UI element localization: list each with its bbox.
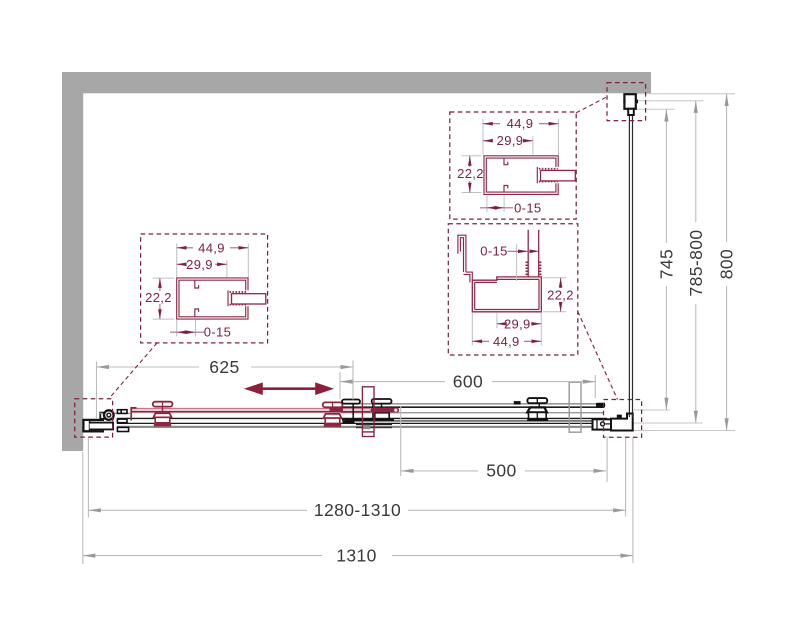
- svg-text:1280-1310: 1280-1310: [314, 500, 401, 520]
- svg-text:0-15: 0-15: [514, 200, 541, 215]
- svg-text:0-15: 0-15: [204, 325, 231, 340]
- svg-text:44,9: 44,9: [507, 116, 534, 131]
- svg-text:800: 800: [717, 249, 737, 279]
- svg-text:0-15: 0-15: [480, 243, 507, 258]
- svg-text:625: 625: [209, 357, 239, 377]
- svg-text:745: 745: [656, 249, 676, 279]
- svg-text:22,2: 22,2: [457, 166, 484, 181]
- svg-text:1310: 1310: [336, 545, 377, 565]
- svg-text:500: 500: [486, 461, 516, 481]
- svg-text:29,9: 29,9: [504, 316, 531, 331]
- svg-text:44,9: 44,9: [493, 334, 520, 349]
- svg-text:22,2: 22,2: [547, 287, 574, 302]
- svg-text:22,2: 22,2: [145, 290, 172, 305]
- svg-text:29,9: 29,9: [186, 257, 213, 272]
- svg-text:785-800: 785-800: [686, 229, 706, 296]
- svg-text:44,9: 44,9: [198, 240, 225, 255]
- svg-text:600: 600: [453, 371, 483, 391]
- svg-text:29,9: 29,9: [497, 133, 524, 148]
